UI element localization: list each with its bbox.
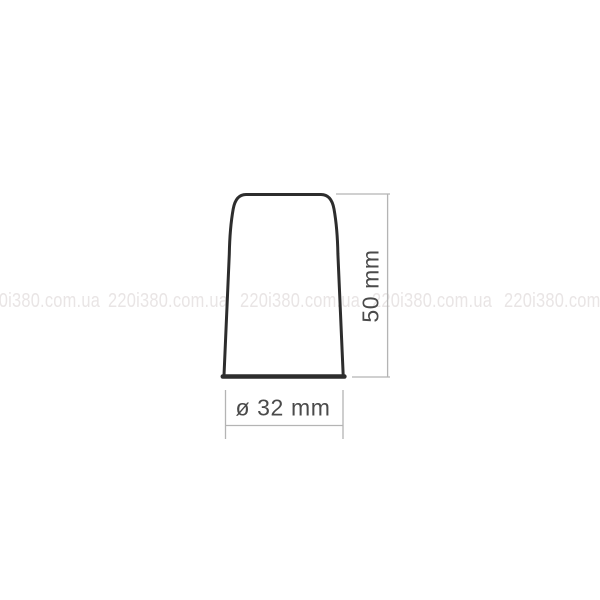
socket-outline <box>224 195 343 376</box>
technical-drawing-svg <box>0 0 600 600</box>
diameter-dimension-label: ø 32 mm <box>236 395 331 422</box>
height-dimension-label: 50 mm <box>358 249 385 322</box>
product-dimension-drawing: 220i380.com.ua 220i380.com.ua 220i380.co… <box>0 0 600 600</box>
